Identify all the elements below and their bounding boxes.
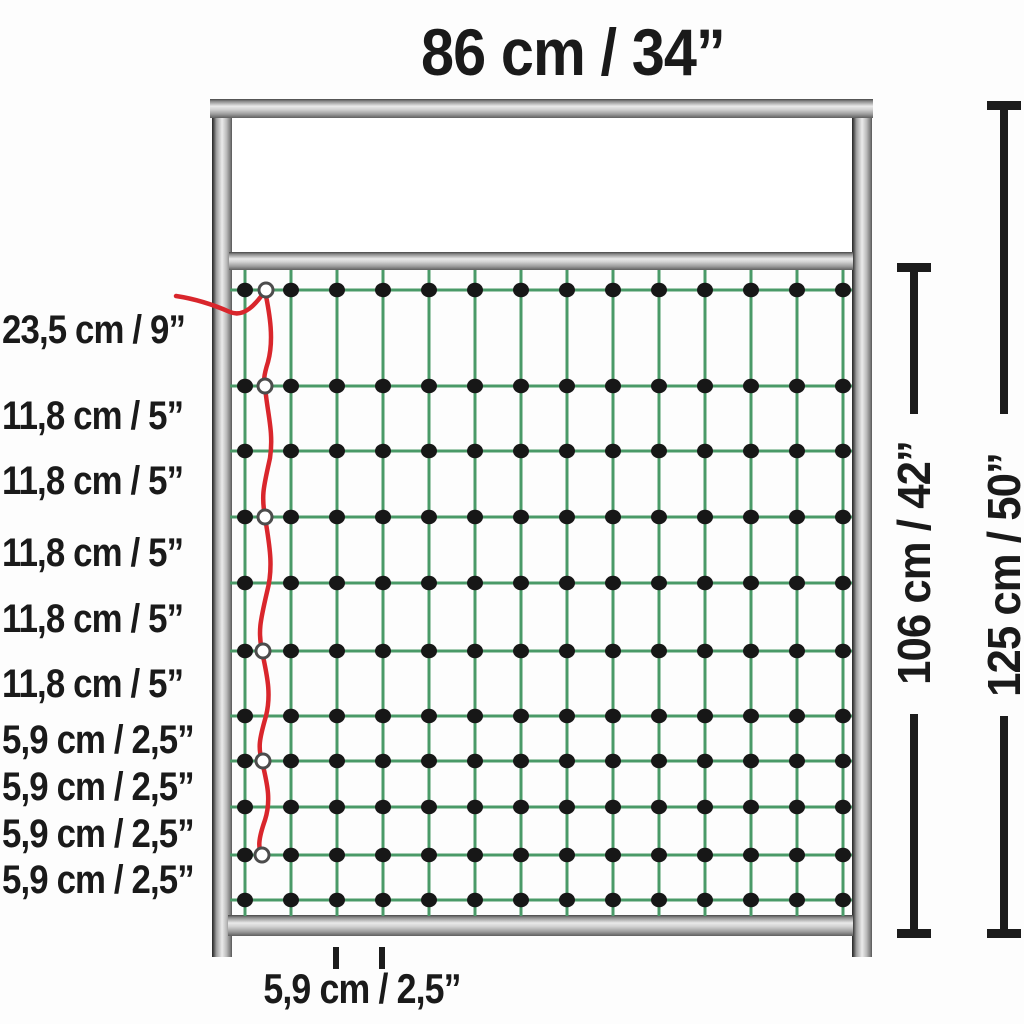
net-knot	[835, 379, 851, 393]
net-knot	[237, 379, 253, 393]
net-knot	[651, 576, 667, 590]
net-knot	[467, 644, 483, 658]
net-knot	[513, 848, 529, 862]
net-knot	[789, 379, 805, 393]
net-knot	[651, 644, 667, 658]
net-knot	[467, 800, 483, 814]
net-knot	[789, 893, 805, 907]
net-knot	[283, 893, 299, 907]
net-knot	[329, 444, 345, 458]
net-knot	[789, 444, 805, 458]
net-knot	[237, 709, 253, 723]
net-knot	[283, 848, 299, 862]
net-knot	[789, 510, 805, 524]
net-knot	[237, 283, 253, 297]
net-knot	[605, 800, 621, 814]
net-knot	[697, 644, 713, 658]
net-knot	[467, 510, 483, 524]
net-knot	[743, 283, 759, 297]
net-knot	[789, 576, 805, 590]
net-knot	[559, 709, 575, 723]
dim-cap	[987, 929, 1021, 938]
net-knot	[283, 709, 299, 723]
net-knot	[421, 644, 437, 658]
left-measurement-label: 11,8 cm / 5”	[2, 532, 183, 574]
label-top-width: 86 cm / 34”	[421, 16, 709, 88]
net-knot	[283, 644, 299, 658]
net-knot	[605, 893, 621, 907]
net-knot	[513, 754, 529, 768]
net-knot	[605, 444, 621, 458]
net-knot	[789, 848, 805, 862]
dim-segment	[1000, 106, 1008, 414]
net-knot	[559, 893, 575, 907]
net-knot	[237, 510, 253, 524]
net-knot	[559, 510, 575, 524]
net-knot	[329, 510, 345, 524]
net-knot	[329, 848, 345, 862]
net-knot	[375, 379, 391, 393]
net-knot	[697, 379, 713, 393]
net-knot	[651, 379, 667, 393]
net-knot	[835, 893, 851, 907]
insulator-ring	[255, 848, 269, 862]
net-knot	[513, 283, 529, 297]
left-measurement-label: 11,8 cm / 5”	[2, 598, 183, 640]
insulator-ring	[256, 754, 270, 768]
gate-frame-top-bar	[210, 99, 873, 118]
dim-segment	[910, 268, 918, 414]
net-knot	[789, 283, 805, 297]
net-knot	[375, 800, 391, 814]
gate-frame-left-post	[212, 102, 232, 957]
net-knot	[651, 510, 667, 524]
net-knot	[789, 754, 805, 768]
net-knot	[789, 644, 805, 658]
dim-segment	[910, 714, 918, 932]
net-knot	[559, 644, 575, 658]
net-knot	[467, 283, 483, 297]
net-knot	[651, 283, 667, 297]
net-knot	[743, 754, 759, 768]
insulator-ring	[258, 379, 272, 393]
net-knot	[651, 893, 667, 907]
label-total-height: 125 cm / 50”	[980, 433, 1024, 718]
net-knot	[835, 754, 851, 768]
left-measurement-label: 5,9 cm / 2,5”	[2, 813, 194, 855]
net-knot	[421, 576, 437, 590]
net-knot	[743, 510, 759, 524]
net-knot	[697, 709, 713, 723]
net-knot	[237, 754, 253, 768]
net-knot	[697, 800, 713, 814]
net-knot	[421, 510, 437, 524]
net-knot	[421, 754, 437, 768]
net-knot	[697, 848, 713, 862]
net-knot	[421, 379, 437, 393]
insulator-ring	[256, 644, 270, 658]
net-knot	[237, 576, 253, 590]
net-knot	[283, 510, 299, 524]
net-knot	[283, 444, 299, 458]
net-knot	[697, 444, 713, 458]
net-knot	[329, 576, 345, 590]
net-knot	[375, 576, 391, 590]
left-measurement-label: 5,9 cm / 2,5”	[2, 859, 194, 901]
label-net-height: 106 cm / 42”	[890, 421, 938, 706]
net-knot	[467, 379, 483, 393]
net-knot	[835, 644, 851, 658]
net-knot	[789, 800, 805, 814]
net-knot	[421, 444, 437, 458]
net-knot	[467, 893, 483, 907]
net-knot	[329, 754, 345, 768]
net-knot	[835, 709, 851, 723]
net-knot	[835, 848, 851, 862]
net-knot	[283, 379, 299, 393]
net-knot	[743, 893, 759, 907]
label-mesh-width: 5,9 cm / 2,5”	[235, 966, 490, 1012]
net-knot	[421, 848, 437, 862]
net-knot	[375, 510, 391, 524]
net-knot	[329, 644, 345, 658]
net-knot	[283, 283, 299, 297]
net-knot	[375, 893, 391, 907]
left-measurement-label: 11,8 cm / 5”	[2, 663, 183, 705]
net-group	[176, 270, 852, 916]
net-knot	[743, 576, 759, 590]
net-knot	[743, 848, 759, 862]
net-knot	[375, 848, 391, 862]
net-knot	[329, 893, 345, 907]
net-knot	[697, 576, 713, 590]
net-knot	[375, 709, 391, 723]
net-knot	[237, 644, 253, 658]
dim-cap	[897, 929, 931, 938]
gate-frame-right-post	[852, 102, 872, 957]
gate-frame	[210, 99, 873, 957]
gate-frame-middle-bar	[229, 252, 853, 270]
net-knot	[743, 379, 759, 393]
net-knot	[283, 576, 299, 590]
net-knot	[467, 848, 483, 862]
net-knot	[467, 576, 483, 590]
net-knot	[375, 754, 391, 768]
net-knot	[421, 283, 437, 297]
net-knot	[467, 709, 483, 723]
net-knot	[559, 848, 575, 862]
left-measurement-label: 5,9 cm / 2,5”	[2, 766, 194, 808]
netting-gate-dimension-diagram: 86 cm / 34” 23,5 cm / 9” 11,8 cm / 5” 11…	[0, 0, 1024, 1024]
net-knot	[559, 379, 575, 393]
net-knot	[513, 510, 529, 524]
net-knot	[559, 754, 575, 768]
net-knot	[697, 283, 713, 297]
net-knot	[605, 510, 621, 524]
net-knot	[651, 754, 667, 768]
net-knot	[605, 644, 621, 658]
net-knot	[375, 444, 391, 458]
net-knot	[559, 800, 575, 814]
net-knot	[835, 576, 851, 590]
net-knot	[743, 800, 759, 814]
left-measurement-label: 5,9 cm / 2,5”	[2, 719, 194, 761]
left-measurement-label: 11,8 cm / 5”	[2, 395, 183, 437]
net-knot	[375, 644, 391, 658]
net-knot	[559, 576, 575, 590]
net-knot	[421, 709, 437, 723]
net-knot	[651, 800, 667, 814]
net-knot	[743, 444, 759, 458]
net-knot	[421, 800, 437, 814]
net-knot	[237, 893, 253, 907]
net-knot	[329, 379, 345, 393]
net-knot	[789, 709, 805, 723]
left-measurement-label: 11,8 cm / 5”	[2, 460, 183, 502]
net-knot	[467, 754, 483, 768]
net-knot	[513, 893, 529, 907]
net-knot	[605, 576, 621, 590]
net-knot	[329, 283, 345, 297]
net-knot	[835, 283, 851, 297]
net-knot	[697, 754, 713, 768]
net-knot	[651, 444, 667, 458]
net-knot	[421, 893, 437, 907]
net-knot	[651, 709, 667, 723]
net-knot	[513, 444, 529, 458]
net-knot	[283, 800, 299, 814]
net-knot	[697, 893, 713, 907]
net-knot	[329, 709, 345, 723]
net-knot	[513, 800, 529, 814]
net-knot	[651, 848, 667, 862]
net-knot	[237, 444, 253, 458]
dim-segment	[1000, 716, 1008, 932]
net-knot	[835, 510, 851, 524]
net-knot	[605, 709, 621, 723]
net-knot	[237, 848, 253, 862]
net-knot	[513, 644, 529, 658]
net-knot	[237, 800, 253, 814]
net-knot	[513, 379, 529, 393]
net-knot	[605, 848, 621, 862]
gate-frame-bottom-bar	[228, 915, 853, 936]
net-knot	[835, 800, 851, 814]
net-knot	[513, 576, 529, 590]
net-knot	[743, 644, 759, 658]
net-knot	[375, 283, 391, 297]
net-knot	[605, 754, 621, 768]
net-knot	[835, 444, 851, 458]
net-knot	[605, 379, 621, 393]
insulator-ring	[258, 510, 272, 524]
left-measurement-label: 23,5 cm / 9”	[2, 309, 185, 351]
net-knot	[697, 510, 713, 524]
net-knot	[559, 444, 575, 458]
insulator-ring	[259, 283, 273, 297]
net-knot	[743, 709, 759, 723]
net-knot	[513, 709, 529, 723]
net-knot	[559, 283, 575, 297]
gate-top-panel	[232, 118, 852, 252]
net-knot	[605, 283, 621, 297]
net-knot	[467, 444, 483, 458]
net-knot	[283, 754, 299, 768]
net-knot	[329, 800, 345, 814]
